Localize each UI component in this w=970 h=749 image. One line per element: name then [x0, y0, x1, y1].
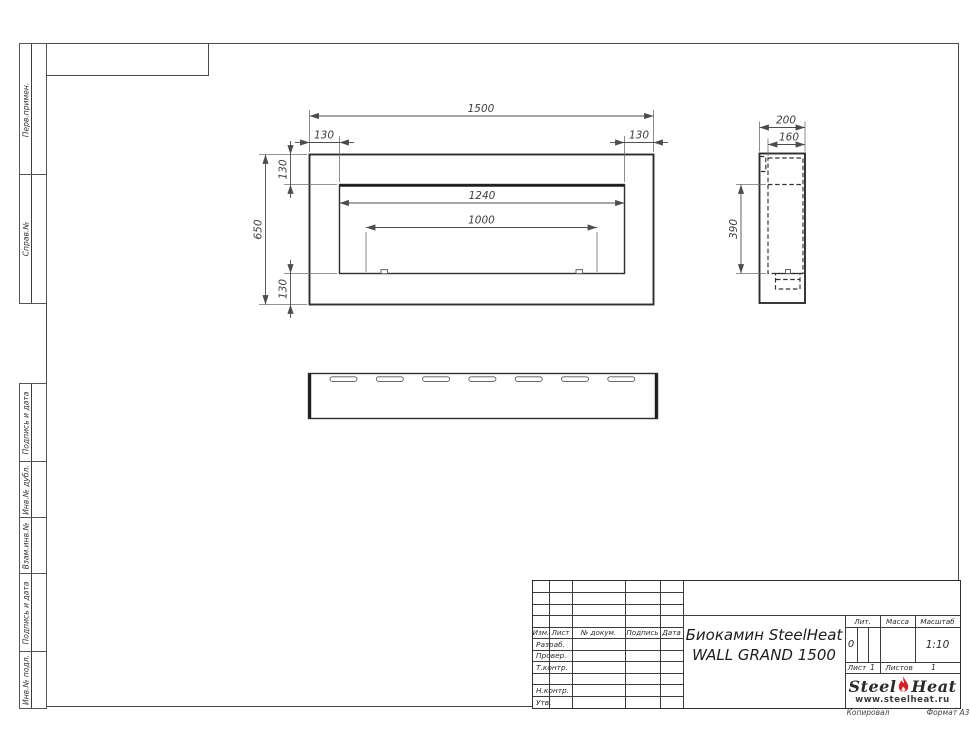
vent-slot	[423, 377, 450, 382]
row-razrab: Разраб.	[533, 638, 572, 650]
row-blank	[533, 673, 572, 684]
format-label: Формат А3	[918, 708, 970, 717]
grid-line	[857, 627, 858, 662]
dim-front-height: 650	[253, 219, 265, 239]
dim-burner-width: 1000	[468, 215, 495, 227]
col-izm: Изм.	[533, 627, 549, 638]
grid-line	[533, 592, 683, 593]
grid-line	[868, 627, 869, 662]
lit-value: 0	[845, 627, 857, 662]
col-sign: Подпись	[625, 627, 660, 638]
row-prover: Провер.	[533, 650, 572, 661]
document-title: Биокамин SteelHeat WALL GRAND 1500	[683, 615, 845, 675]
company-logo: Steel Heat www.steelheat.ru	[845, 673, 960, 708]
lit-label: Лит.	[845, 615, 880, 627]
logo-text-steel: Steel	[849, 677, 897, 696]
vent-slot	[608, 377, 635, 382]
wall-bracket	[760, 157, 766, 172]
vent-slot	[469, 377, 496, 382]
sheet-label: Лист	[847, 662, 867, 673]
dim-margin-right: 130	[629, 130, 649, 142]
dim-margin-bottom: 130	[278, 279, 290, 299]
row-tkontr: Т.контр.	[533, 661, 572, 673]
vent-slot	[376, 377, 403, 382]
front-view	[310, 155, 654, 305]
blueprint-sheet: Перв.примен. Справ.№ Подпись и дата Инв.…	[0, 0, 970, 749]
vent-slot	[330, 377, 357, 382]
copied-label: Копировал	[838, 708, 898, 717]
col-doc: № докум.	[572, 627, 625, 638]
col-date: Дата	[660, 627, 683, 638]
title-block: Изм. Лист № докум. Подпись Дата Разраб. …	[532, 580, 961, 709]
dim-front-width: 1500	[468, 103, 495, 115]
logo-text-heat: Heat	[911, 677, 956, 696]
dim-opening-width: 1240	[469, 190, 496, 202]
flame-icon	[896, 676, 911, 695]
bottom-view	[309, 374, 658, 419]
burner-box	[776, 274, 801, 290]
sheet-value: 1	[867, 662, 878, 673]
dim-opening-height: 390	[728, 219, 740, 239]
dim-depth: 200	[776, 115, 796, 127]
grid-line	[533, 604, 683, 605]
burner-mount-tab-left	[381, 270, 388, 274]
document-title-line1: Биокамин SteelHeat	[686, 625, 843, 645]
vent-slot	[515, 377, 542, 382]
side-view-dimensions: 200 160 390	[728, 115, 805, 274]
logo-wordmark: Steel Heat	[849, 676, 957, 696]
grid-line	[625, 581, 626, 708]
grid-line	[660, 581, 661, 708]
dim-margin-left: 130	[314, 130, 334, 142]
logo-url: www.steelheat.ru	[855, 695, 950, 705]
document-title-line2: WALL GRAND 1500	[692, 645, 836, 665]
burner-nub	[786, 270, 791, 274]
burner-mount-tab-right	[576, 270, 583, 274]
row-nkontr: Н.контр.	[533, 684, 572, 696]
mass-label: Масса	[880, 615, 915, 627]
sheets-label: Листов	[883, 662, 915, 673]
dim-margin-top: 130	[278, 159, 290, 179]
scale-value: 1:10	[915, 627, 960, 662]
vent-slot	[562, 377, 589, 382]
grid-line	[572, 581, 573, 708]
row-utv: Утв.	[533, 696, 572, 708]
scale-label: Масштаб	[915, 615, 960, 627]
dim-inner-depth: 160	[779, 132, 799, 144]
sheets-value: 1	[928, 662, 939, 673]
side-view	[760, 154, 806, 304]
front-view-dimensions: 1500 650 1240 1000 130 130 130 130	[253, 103, 669, 318]
col-list: Лист	[549, 627, 572, 638]
